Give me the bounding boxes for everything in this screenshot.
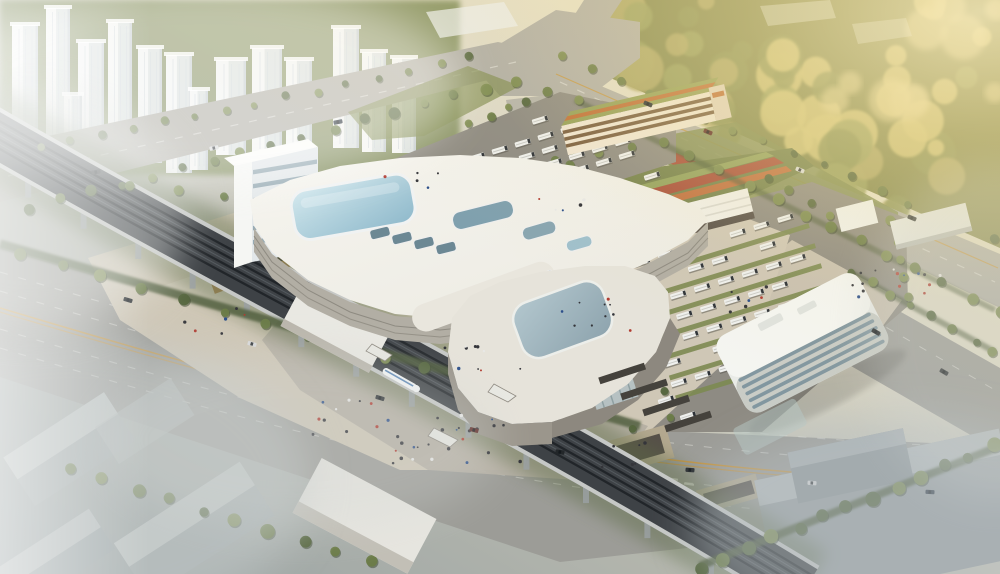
atmosphere-haze (0, 0, 1000, 574)
render-canvas (0, 0, 1000, 574)
aerial-rendering (0, 0, 1000, 574)
